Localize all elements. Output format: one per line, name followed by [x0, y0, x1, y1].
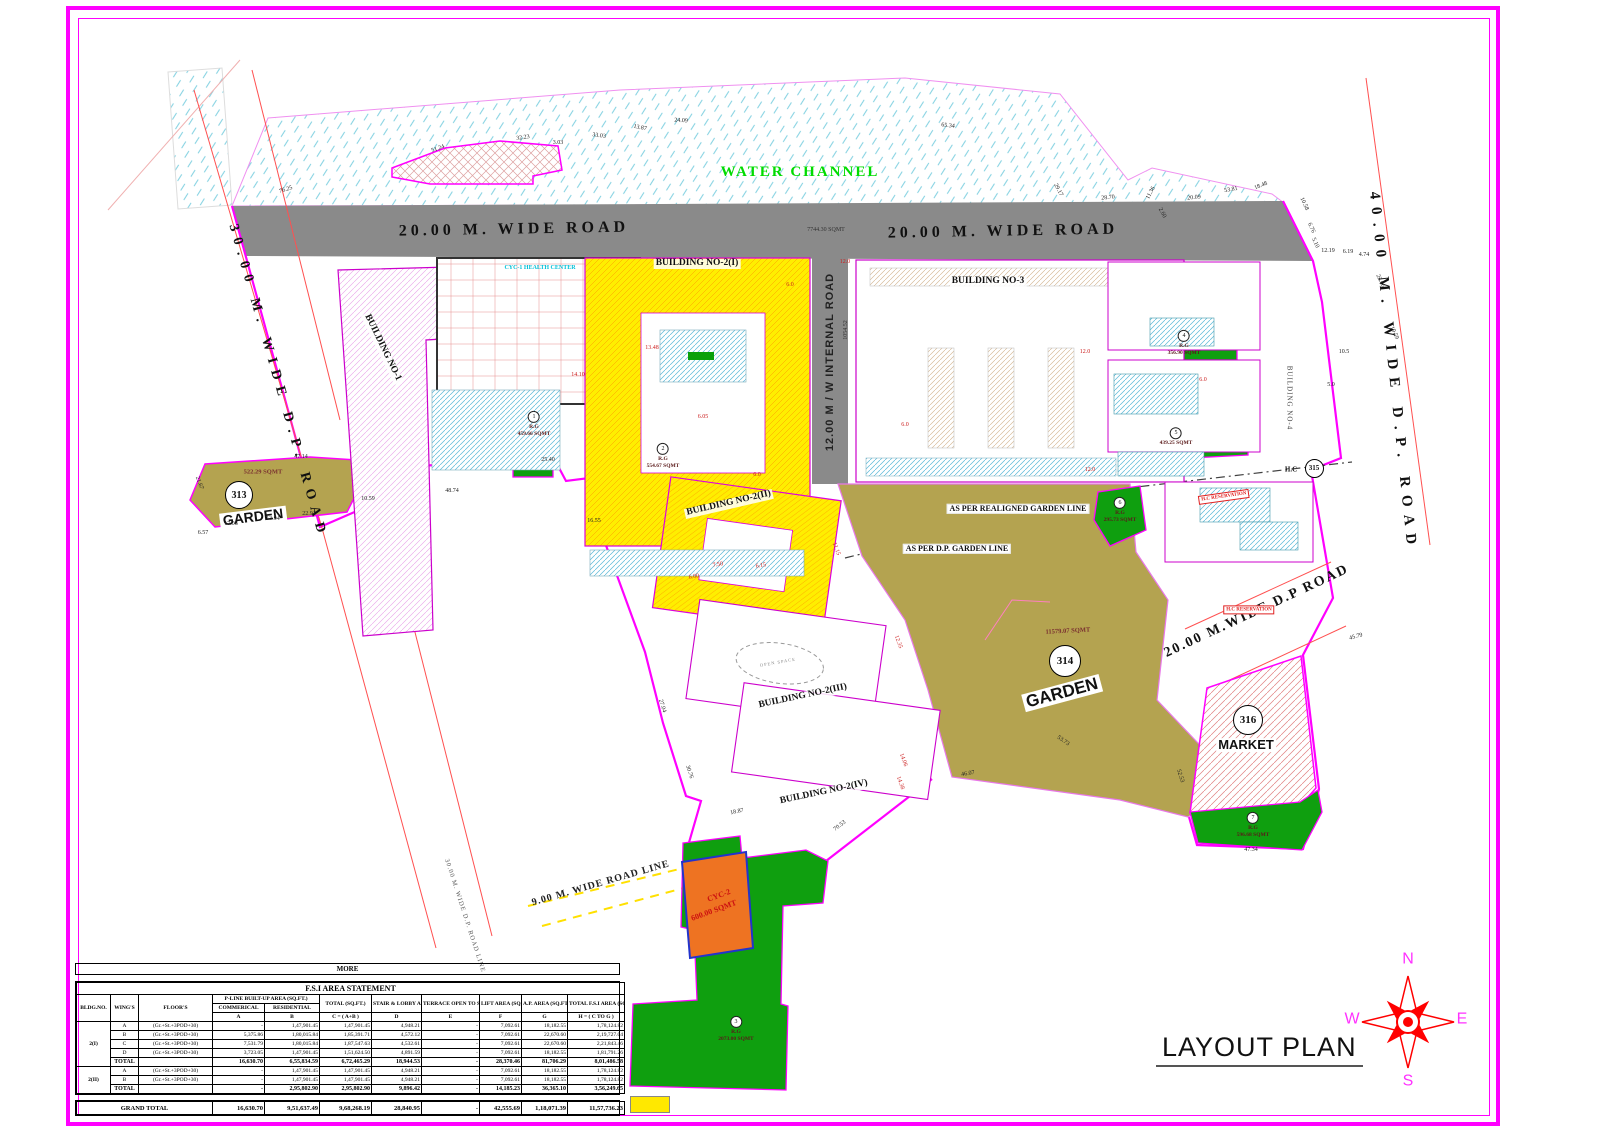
yellow-legend-chip [630, 1096, 670, 1113]
cell-b: 1,47,901.45 [265, 1022, 320, 1031]
cell-f: 14,185.23 [480, 1085, 522, 1094]
cell-f: 7,092.61 [480, 1031, 522, 1040]
cell-floor: (Gr.+St.+3POD+30) [139, 1076, 213, 1085]
grand-c: 9,68,268.19 [320, 1102, 372, 1115]
letter-col-G: G [522, 1013, 568, 1022]
cell-d: 4,891.59 [372, 1049, 422, 1058]
letter-col-E: E [422, 1013, 480, 1022]
cell-f: 7,092.61 [480, 1022, 522, 1031]
cell-wing: B [111, 1076, 139, 1085]
cell-d: 4,948.21 [372, 1076, 422, 1085]
rg-area: 439.25 SQMT [1160, 440, 1193, 447]
fsi-table-title: F.S.I AREA STATEMENT [77, 983, 625, 995]
cell-floor: (Gr.+St.+3POD+30) [139, 1067, 213, 1076]
cell-b: 1,47,901.45 [265, 1076, 320, 1085]
cell-floor: (Gr.+St.+3POD+30) [139, 1049, 213, 1058]
cell-g: 36,365.10 [522, 1085, 568, 1094]
grand-h: 11,57,736.23 [568, 1102, 625, 1115]
rg-marker-4: 4R.G356.90 SQMT [1168, 324, 1201, 356]
letter-col-A: A [213, 1013, 265, 1022]
cell-c: 2,95,802.90 [320, 1085, 372, 1094]
cell-e: - [422, 1022, 480, 1031]
dimension-label: 14.10 [571, 372, 585, 378]
rg-area: 2073.00 SQMT [718, 1036, 753, 1043]
cell-g: 18,182.55 [522, 1022, 568, 1031]
rg-area: 356.90 SQMT [1168, 350, 1201, 357]
cell-f: 7,092.61 [480, 1040, 522, 1049]
dimension-label: 6.0 [786, 282, 794, 288]
cell-e: - [422, 1040, 480, 1049]
cell-f: 7,092.61 [480, 1049, 522, 1058]
rg-area: 554.67 SQMT [647, 463, 680, 470]
hc-reservation-2: H.C RESERVATION [1223, 605, 1274, 614]
compass-n: N [1402, 952, 1414, 969]
cell-a: - [213, 1085, 265, 1094]
cell-c: 1,51,624.50 [320, 1049, 372, 1058]
cell-f: 7,092.61 [480, 1067, 522, 1076]
cell-e: - [422, 1076, 480, 1085]
dimension-label: 25.40 [541, 457, 555, 463]
rg-number: 3 [730, 1016, 742, 1028]
cell-h: 1,81,791.26 [568, 1049, 625, 1058]
dimension-label: 6.0 [1199, 377, 1207, 383]
hc-label: H.C [1285, 466, 1297, 473]
grand-e: - [422, 1102, 480, 1115]
grand-b: 9,51,637.49 [265, 1102, 320, 1115]
layout-plan-title: LAYOUT PLAN [1156, 1032, 1363, 1067]
col-fsi: TOTAL F.S.I AREA (SQ.FT.) [568, 995, 625, 1013]
cell-c: 1,47,901.45 [320, 1076, 372, 1085]
dimension-label: 6.57 [198, 530, 209, 536]
cell-b: 1,80,015.84 [265, 1031, 320, 1040]
letter-col-H: H = ( C TO G ) [568, 1013, 625, 1022]
market-316-name: MARKET [1216, 738, 1276, 752]
cell-d: 4,532.61 [372, 1040, 422, 1049]
letter-col-D: D [372, 1013, 422, 1022]
cell-g: 22,670.60 [522, 1031, 568, 1040]
cell-b: 1,47,901.45 [265, 1049, 320, 1058]
dimension-label: 12.0 [1080, 349, 1091, 355]
cell-wing: A [111, 1022, 139, 1031]
rg-number: 2 [657, 443, 669, 455]
cell-d: 9,896.42 [372, 1085, 422, 1094]
cell-b: 1,80,015.84 [265, 1040, 320, 1049]
fsi-area-statement: MORE F.S.I AREA STATEMENT BLDG.NO. WING'… [75, 963, 620, 1116]
dimension-label: 6.19 [1343, 249, 1354, 255]
letter-col-C: C = ( A+B ) [320, 1013, 372, 1022]
col-stair: STAIR & LOBBY AREA (SQ.FT.) [372, 995, 422, 1013]
rg-area: 295.73 SQMT [1104, 517, 1137, 524]
rg-marker-1: 1R.G459.66 SQMT [518, 405, 551, 437]
dimension-label: 13.48 [645, 345, 659, 351]
cell-h: 1,78,124.82 [568, 1022, 625, 1031]
cell-f: 7,092.61 [480, 1076, 522, 1085]
cell-e: - [422, 1031, 480, 1040]
cell-g: 81,706.29 [522, 1058, 568, 1067]
cell-c: 6,72,465.29 [320, 1058, 372, 1067]
cell-a: - [213, 1022, 265, 1031]
dimension-label: 5.0 [1327, 382, 1335, 388]
compass-w: W [1344, 1012, 1359, 1029]
rg-marker-5: 5439.25 SQMT [1160, 421, 1193, 447]
bldg-cell: 2(II) [77, 1067, 111, 1094]
cell-h: 2,21,843.46 [568, 1040, 625, 1049]
rg-area: 459.66 SQMT [518, 431, 551, 438]
grand-f: 42,555.69 [480, 1102, 522, 1115]
grand-a: 16,630.70 [213, 1102, 265, 1115]
cell-wing: D [111, 1049, 139, 1058]
cell-a: 5,375.86 [213, 1031, 265, 1040]
dimension-label: 65.34 [941, 122, 955, 129]
dimension-label: 4.74 [1359, 252, 1370, 258]
cell-e: - [422, 1058, 480, 1067]
cell-a: 3,723.05 [213, 1049, 265, 1058]
cell-wing: TOTAL [111, 1058, 139, 1067]
dimension-label: 47.34 [1244, 847, 1258, 853]
rg-label: R.G [1104, 510, 1137, 517]
layout-plan-sheet: WATER CHANNEL20.00 M. WIDE ROAD20.00 M. … [0, 0, 1600, 1132]
internal-road-area: 1054.52 [843, 320, 849, 340]
cell-d: 4,948.21 [372, 1022, 422, 1031]
col-residential: RESIDENTIAL [265, 1004, 320, 1013]
road-20m-region [232, 201, 1313, 261]
hc-315-number: 315 [1305, 459, 1324, 478]
cell-h: 2,19,727.04 [568, 1031, 625, 1040]
col-commercial: COMMERICAL [213, 1004, 265, 1013]
col-ap: A.P. AREA (SQ.FT.) [522, 995, 568, 1013]
cyc1-health-center-label: CYC-1 HEALTH CENTER [504, 265, 575, 271]
cell-c: 1,87,547.63 [320, 1040, 372, 1049]
dimension-label: 12.19 [1321, 248, 1335, 254]
rg-label: R.G [1237, 825, 1270, 832]
compass-e: E [1457, 1012, 1468, 1029]
compass-s: S [1403, 1074, 1414, 1091]
cell-d: 4,948.21 [372, 1067, 422, 1076]
col-pline: P-LINE BUILT-UP AREA (SQ.FT.) [213, 995, 320, 1004]
dimension-label: 6.0 [901, 422, 909, 428]
cell-e: - [422, 1049, 480, 1058]
dimension-label: 13.94 [266, 516, 280, 522]
water-channel-label: WATER CHANNEL [721, 165, 880, 181]
cell-a: 16,630.70 [213, 1058, 265, 1067]
rg-label: R.G [1168, 343, 1201, 350]
more-bar: MORE [75, 963, 620, 975]
note-dp-garden: AS PER D.P. GARDEN LINE [903, 544, 1011, 554]
cell-g: 18,182.55 [522, 1049, 568, 1058]
cell-c: 1,47,901.45 [320, 1067, 372, 1076]
rg-number: 5 [1170, 427, 1182, 439]
garden-313-number: 313 [225, 481, 253, 509]
cell-b: 2,95,802.90 [265, 1085, 320, 1094]
dimension-label: 3.03 [553, 140, 564, 146]
cell-a: - [213, 1067, 265, 1076]
dimension-label: 28.70 [1101, 194, 1115, 201]
cell-d: 4,572.12 [372, 1031, 422, 1040]
rg-area: 596.68 SQMT [1237, 832, 1270, 839]
dimension-label: 17.08 [224, 521, 238, 527]
col-wing: WING'S [111, 995, 139, 1022]
rg-label: R.G [718, 1029, 753, 1036]
grand-d: 28,840.95 [372, 1102, 422, 1115]
col-bldg: BLDG.NO. [77, 995, 111, 1022]
cell-floor: (Gr.+St.+3POD+30) [139, 1040, 213, 1049]
rg-label: R.G [647, 456, 680, 463]
dimension-label: 48.74 [445, 488, 459, 494]
cell-floor: (Gr.+St.+3POD+30) [139, 1031, 213, 1040]
cell-floor [139, 1085, 213, 1094]
building-4-label: BUILDING NO-4 [1285, 366, 1292, 431]
cell-e: - [422, 1067, 480, 1076]
cell-h: 1,78,124.82 [568, 1067, 625, 1076]
letter-col-F: F [480, 1013, 522, 1022]
garden-313-area: 522.29 SQMT [244, 470, 283, 477]
grand-total-table: GRAND TOTAL 16,630.70 9,51,637.49 9,68,2… [76, 1101, 625, 1115]
cell-a: 7,531.79 [213, 1040, 265, 1049]
dimension-label: 22.91 [302, 511, 316, 517]
grand-total-label: GRAND TOTAL [77, 1102, 213, 1115]
building-2i-label: BUILDING NO-2(I) [654, 259, 741, 269]
cell-f: 28,370.46 [480, 1058, 522, 1067]
water-channel-region [232, 78, 1284, 206]
rg-number: 7 [1247, 812, 1259, 824]
dimension-label: 10.59 [361, 496, 375, 502]
market-316-region [1190, 656, 1316, 813]
dimension-label: 6.05 [698, 414, 709, 420]
cell-c: 1,47,901.45 [320, 1022, 372, 1031]
cell-h: 3,56,249.65 [568, 1085, 625, 1094]
col-lift: LIFT AREA (SQ.FT.) [480, 995, 522, 1013]
cell-h: 1,78,124.82 [568, 1076, 625, 1085]
dimension-label: 6.0 [753, 472, 761, 478]
parking-strip-south-2i [590, 550, 804, 576]
cell-g: 18,182.55 [522, 1076, 568, 1085]
cell-a: - [213, 1076, 265, 1085]
cell-d: 18,944.53 [372, 1058, 422, 1067]
grand-g: 1,18,071.39 [522, 1102, 568, 1115]
cell-g: 18,182.55 [522, 1067, 568, 1076]
rg-marker-6: 6R.G295.73 SQMT [1104, 491, 1137, 523]
col-total: TOTAL (SQ.FT.) [320, 995, 372, 1013]
cell-c: 1,85,391.71 [320, 1031, 372, 1040]
cell-wing: B [111, 1031, 139, 1040]
dimension-label: 12.0 [1085, 467, 1096, 473]
compass-rose [1362, 976, 1454, 1068]
col-floor: FLOOR'S [139, 995, 213, 1022]
rg-number: 6 [1114, 497, 1126, 509]
col-terrace: TERRACE OPEN TO SKY AREA (SQ.FT.) [422, 995, 480, 1013]
cell-wing: C [111, 1040, 139, 1049]
internal-road-label: 12.00 M / W INTERNAL ROAD [825, 273, 837, 451]
cell-wing: A [111, 1067, 139, 1076]
letter-col-B: B [265, 1013, 320, 1022]
rg-number: 1 [528, 411, 540, 423]
rg-marker-7: 7R.G596.68 SQMT [1237, 806, 1270, 838]
market-316-number: 316 [1233, 705, 1263, 735]
rg-marker-3: 3R.G2073.00 SQMT [718, 1010, 753, 1042]
cell-g: 22,670.60 [522, 1040, 568, 1049]
dimension-label: 16.55 [587, 518, 601, 524]
cell-wing: TOTAL [111, 1085, 139, 1094]
dimension-label: 47.14 [294, 454, 308, 460]
dimension-label: 12.0 [840, 259, 851, 265]
garden-314-number: 314 [1049, 645, 1081, 677]
cell-floor: (Gr.+St.+3POD+30) [139, 1022, 213, 1031]
dimension-label: 24.09 [674, 118, 688, 125]
bldg-cell: 2(I) [77, 1022, 111, 1067]
cell-b: 1,47,901.45 [265, 1067, 320, 1076]
dimension-label: 20.09 [1187, 194, 1201, 201]
dimension-label: 10.5 [1339, 349, 1350, 355]
cell-h: 8,01,486.58 [568, 1058, 625, 1067]
cell-e: - [422, 1085, 480, 1094]
rg-number: 4 [1178, 330, 1190, 342]
cell-b: 6,55,834.59 [265, 1058, 320, 1067]
fsi-table: F.S.I AREA STATEMENT BLDG.NO. WING'S FLO… [76, 982, 625, 1094]
note-realigned-garden: AS PER REALIGNED GARDEN LINE [947, 504, 1090, 514]
rg-label: R.G [518, 424, 551, 431]
cell-floor [139, 1058, 213, 1067]
rg-marker-2: 2R.G554.67 SQMT [647, 437, 680, 469]
building-3-label: BUILDING NO-3 [950, 277, 1027, 287]
road-20m-area: 7744.30 SQMT [807, 227, 845, 233]
